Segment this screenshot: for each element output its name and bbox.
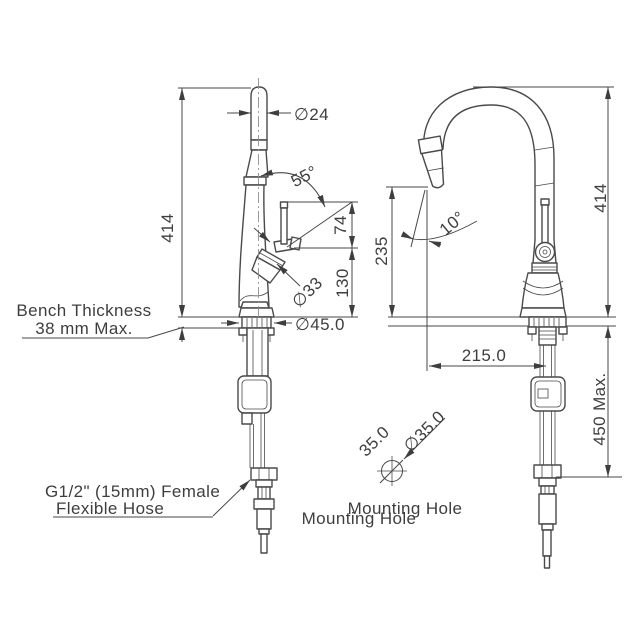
- left-view-faucet: [238, 78, 301, 553]
- dim-label-base-diameter: ∅45.0: [295, 315, 345, 334]
- dim-label-spout-to-bench: 130: [333, 268, 352, 298]
- dim-label-clearance-235: 235: [372, 236, 391, 266]
- dim-label-handle-angle: 55°: [288, 162, 321, 191]
- dim-label-spray-angle: 10°: [436, 207, 469, 239]
- dim-label-cartridge-diameter: ∅33: [288, 273, 326, 311]
- right-view-dimensions: 414 235 10° 215.0 450 Max.: [372, 87, 622, 477]
- hose-note-line2: Flexible Hose: [56, 499, 164, 518]
- dim-label-right-414: 414: [591, 183, 610, 213]
- technical-drawing-page: 414 ∅24 55° 74 130 ∅33 ∅45.0: [0, 0, 640, 640]
- mounting-hole-caption-front: Mounting Hole: [302, 509, 417, 528]
- mounting-hole-width-label: 35.0: [355, 422, 393, 460]
- mounting-hole-detail: 35.0 ∅35.0 Mounting Hole Mounting Hole: [302, 407, 463, 528]
- dim-label-spout-diameter: ∅24: [294, 105, 329, 124]
- dim-label-reach-215: 215.0: [462, 346, 507, 365]
- flexible-hose-note: G1/2" (15mm) Female Flexible Hose: [45, 480, 250, 518]
- bench-thickness-line1: Bench Thickness: [16, 301, 151, 320]
- faucet-technical-drawing: 414 ∅24 55° 74 130 ∅33 ∅45.0: [0, 0, 640, 640]
- right-view-faucet: [418, 87, 567, 568]
- mounting-hole-diameter-label: ∅35.0: [400, 407, 449, 456]
- dim-label-left-414: 414: [158, 213, 177, 243]
- dim-label-handle-height: 74: [331, 215, 350, 235]
- dim-label-hose-drop: 450 Max.: [590, 372, 609, 445]
- bench-thickness-note: Bench Thickness 38 mm Max.: [16, 301, 184, 338]
- bench-thickness-line2: 38 mm Max.: [35, 319, 133, 338]
